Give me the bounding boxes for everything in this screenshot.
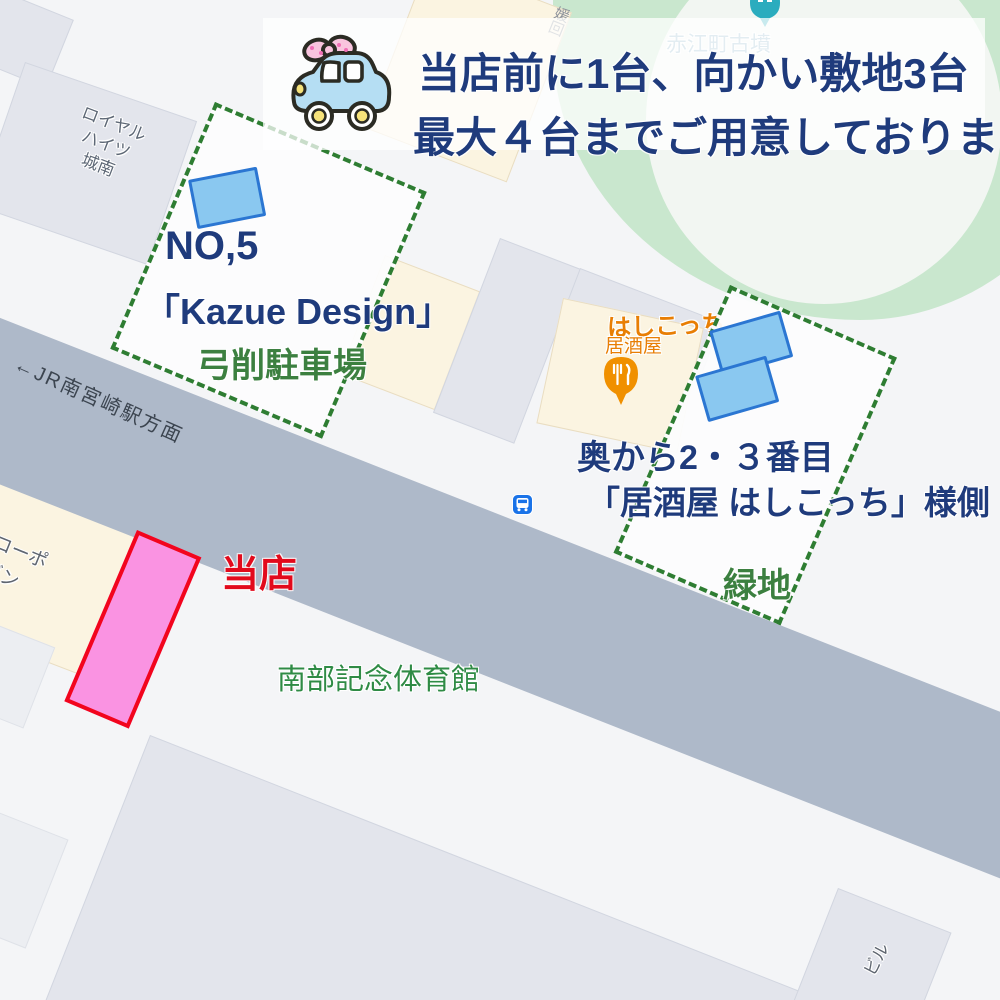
building-gym-block: [0, 735, 822, 1000]
left-lot-parking-name: 弓削駐車場: [197, 338, 367, 387]
banner-line-1: 当店前に1台、向かい敷地3台: [418, 40, 969, 101]
banner-line-2: 最大４台までご用意しております: [413, 104, 1000, 165]
right-lot-side-note: 「居酒屋 はしこっち」様側: [587, 476, 990, 524]
right-lot-area-name: 緑地: [723, 558, 791, 607]
left-lot-name: 「Kazue Design」: [144, 283, 452, 335]
left-lot-number: NO,5: [165, 224, 258, 269]
building-left-small-2: [0, 795, 69, 949]
map-canvas: ←JR南宮崎駅方面 ロイヤル ハイツ 城南 南部記念体育館 赤江町古墳 はしこっ…: [0, 0, 1000, 1000]
izakaya-type-label: 居酒屋: [605, 331, 662, 358]
gym-label: 南部記念体育館: [277, 656, 480, 698]
right-lot-position: 奥から2・３番目: [577, 430, 834, 479]
building-bottom-right: [782, 888, 951, 1000]
store-label: 当店: [221, 543, 297, 598]
car-illustration: [279, 26, 399, 144]
bus-stop-icon: [512, 494, 533, 515]
restaurant-pin-icon: [603, 356, 639, 406]
